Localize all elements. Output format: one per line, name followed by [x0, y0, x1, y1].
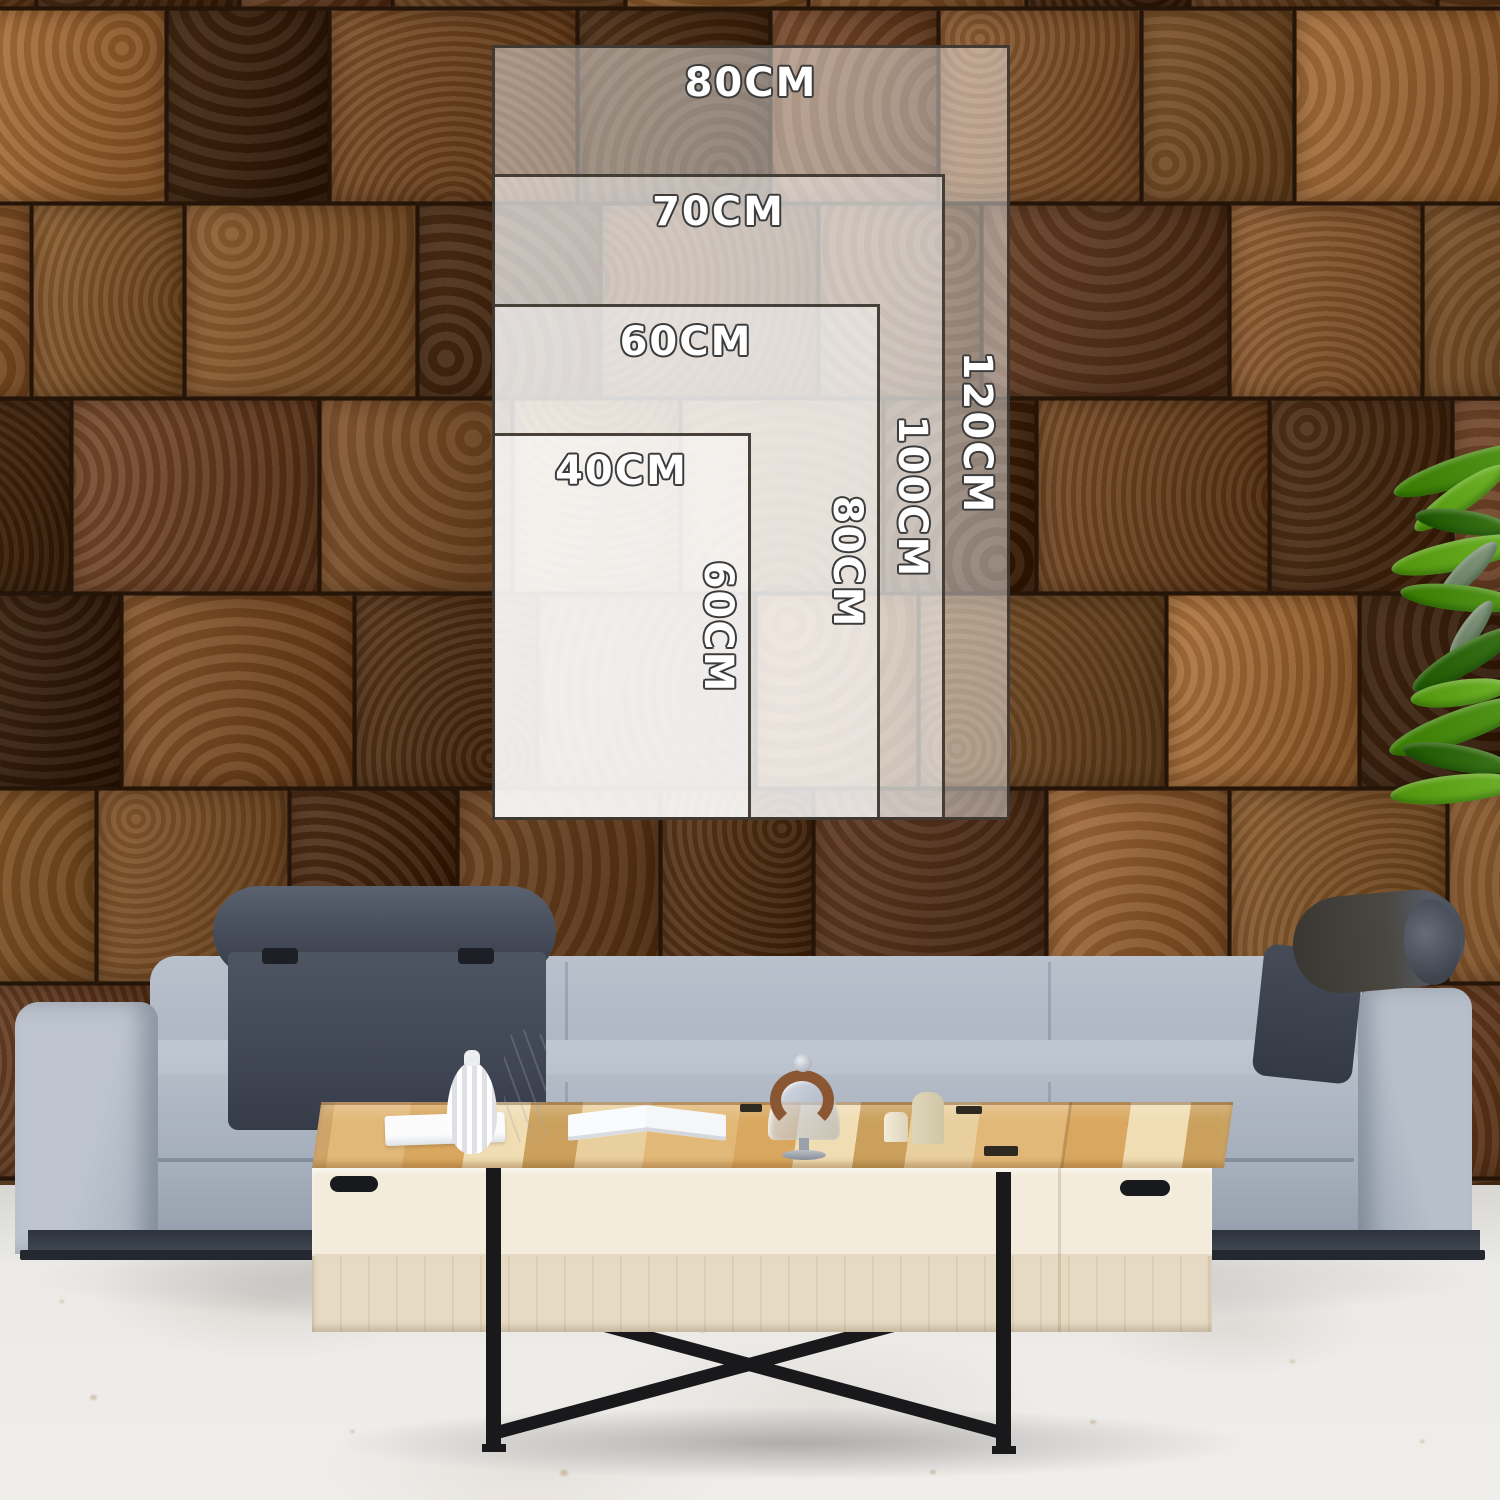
- candle: [884, 1112, 908, 1142]
- table-handle: [330, 1176, 378, 1192]
- size-width-label: 40CM: [495, 448, 748, 494]
- sofa-left-arm: [15, 1002, 158, 1254]
- size-width-label: 70CM: [495, 189, 942, 235]
- mockup-scene: 80CM120CM70CM100CM60CM80CM40CM60CM: [0, 0, 1500, 1500]
- table-top-seam: [1060, 1102, 1072, 1168]
- table-hinge: [740, 1104, 762, 1112]
- table-handle: [1120, 1180, 1170, 1196]
- size-width-label: 80CM: [495, 60, 1007, 106]
- size-height-label: 80CM: [824, 496, 870, 629]
- table-face-seam: [1058, 1168, 1061, 1332]
- sofa-right-arm: [1358, 988, 1472, 1254]
- white-vase-tall: [504, 1030, 548, 1142]
- table-face-lower: [312, 1256, 1212, 1332]
- cloche-base: [782, 1150, 826, 1160]
- table-hinge: [956, 1106, 982, 1114]
- open-book: [568, 1102, 726, 1142]
- table-leg: [996, 1172, 1011, 1452]
- size-option-40x60: 40CM60CM: [492, 433, 751, 820]
- book-page: [646, 1105, 726, 1141]
- table-leg: [486, 1168, 501, 1450]
- candle: [912, 1092, 944, 1144]
- size-height-label: 100CM: [889, 416, 935, 579]
- table-shadow: [330, 1406, 1250, 1480]
- table-hinge: [984, 1146, 1018, 1156]
- size-height-label: 60CM: [695, 560, 741, 693]
- cloche-knob: [794, 1054, 812, 1072]
- cloche-strap: [770, 1070, 834, 1130]
- size-height-label: 120CM: [954, 351, 1000, 514]
- table-face-upper: [312, 1168, 1212, 1256]
- size-width-label: 60CM: [495, 319, 877, 365]
- headrest-clip: [458, 948, 494, 964]
- headrest-clip: [262, 948, 298, 964]
- book-page: [568, 1105, 648, 1141]
- table-front-face: [312, 1168, 1212, 1332]
